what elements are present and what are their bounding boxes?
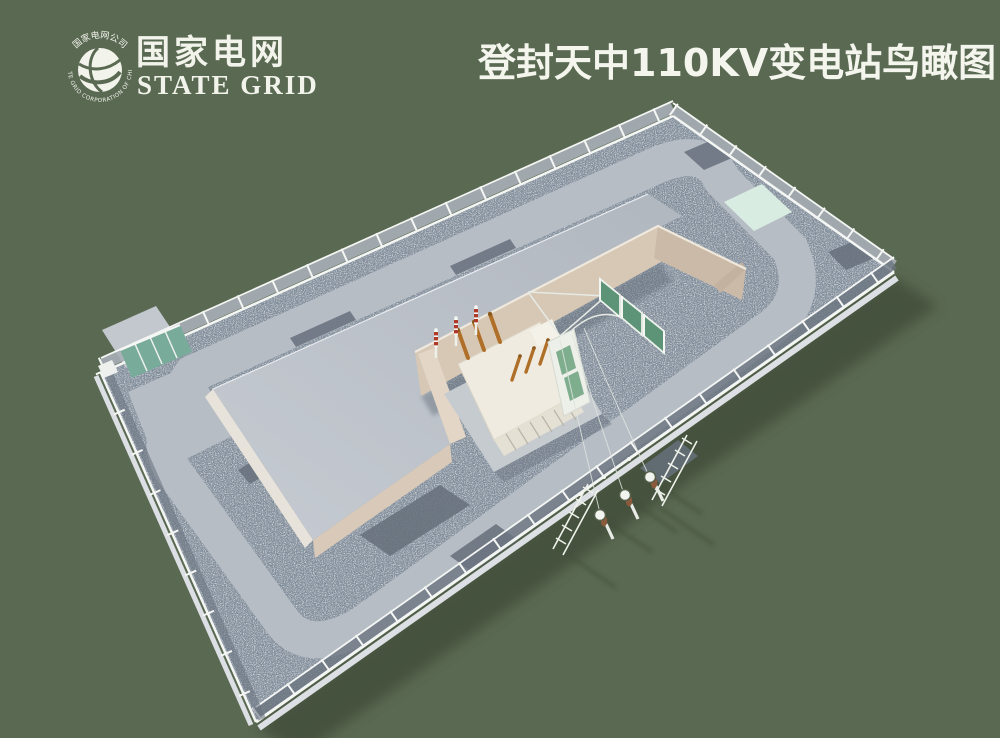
- substation-render-page: 国家电网公司 STATE GRID CORPORATION OF CHINA 国…: [0, 0, 1000, 738]
- aerial-render-canvas: 国家电网公司 STATE GRID CORPORATION OF CHINA: [0, 0, 1000, 738]
